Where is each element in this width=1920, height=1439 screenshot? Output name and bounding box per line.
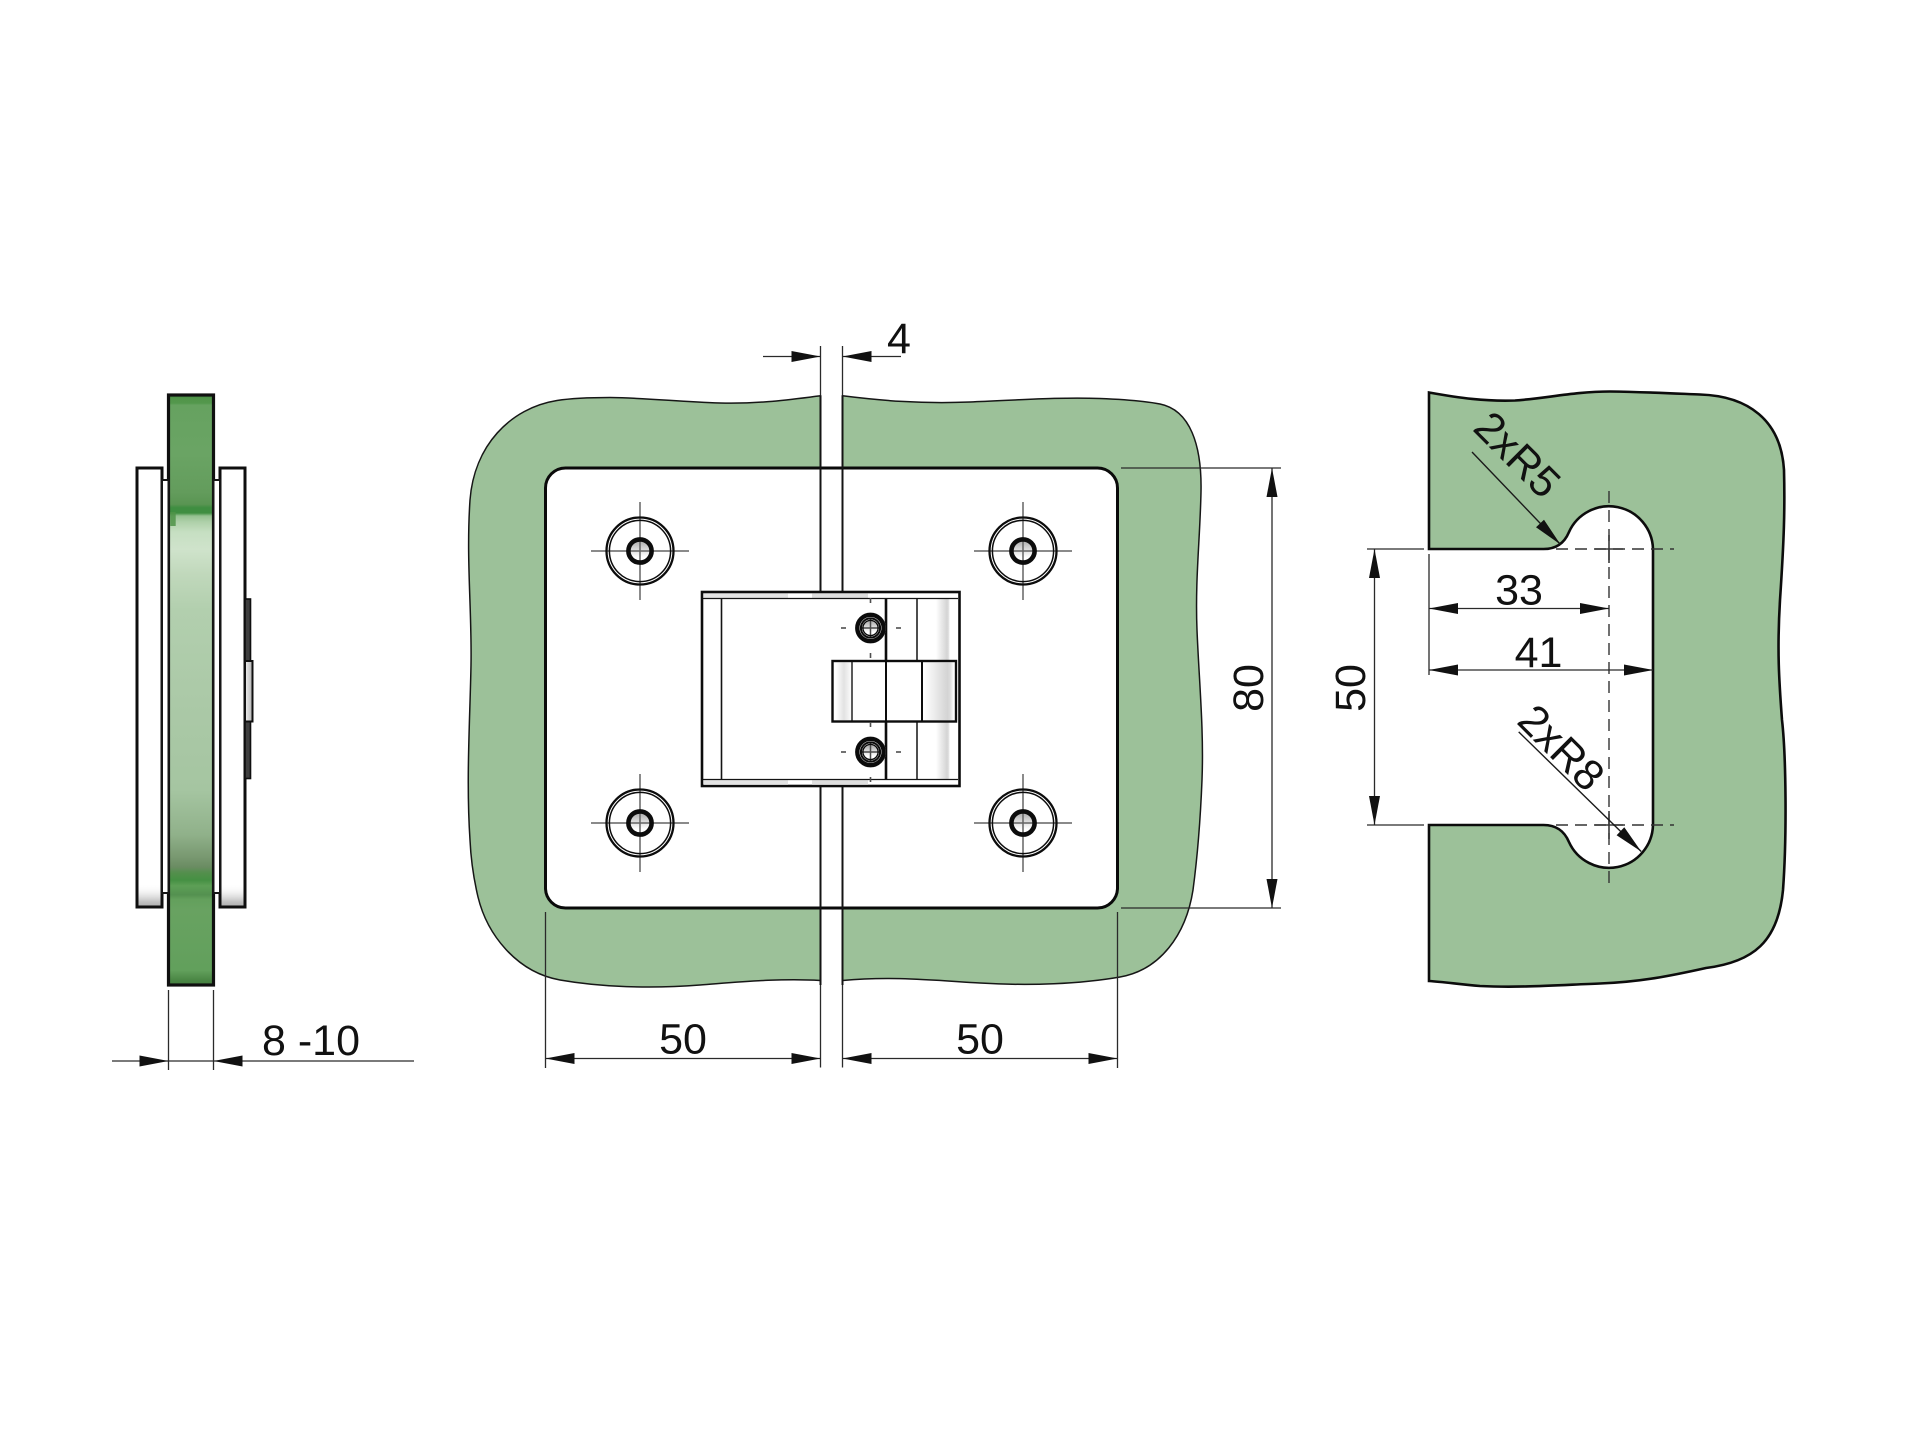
svg-text:8 -10: 8 -10 (262, 1017, 360, 1065)
svg-text:50: 50 (1327, 664, 1375, 712)
svg-text:50: 50 (659, 1016, 707, 1064)
svg-text:4: 4 (887, 315, 911, 363)
svg-text:33: 33 (1495, 567, 1543, 615)
svg-text:2xR8: 2xR8 (1508, 696, 1613, 801)
svg-text:41: 41 (1515, 629, 1563, 677)
svg-text:80: 80 (1225, 664, 1273, 712)
svg-text:50: 50 (956, 1016, 1004, 1064)
